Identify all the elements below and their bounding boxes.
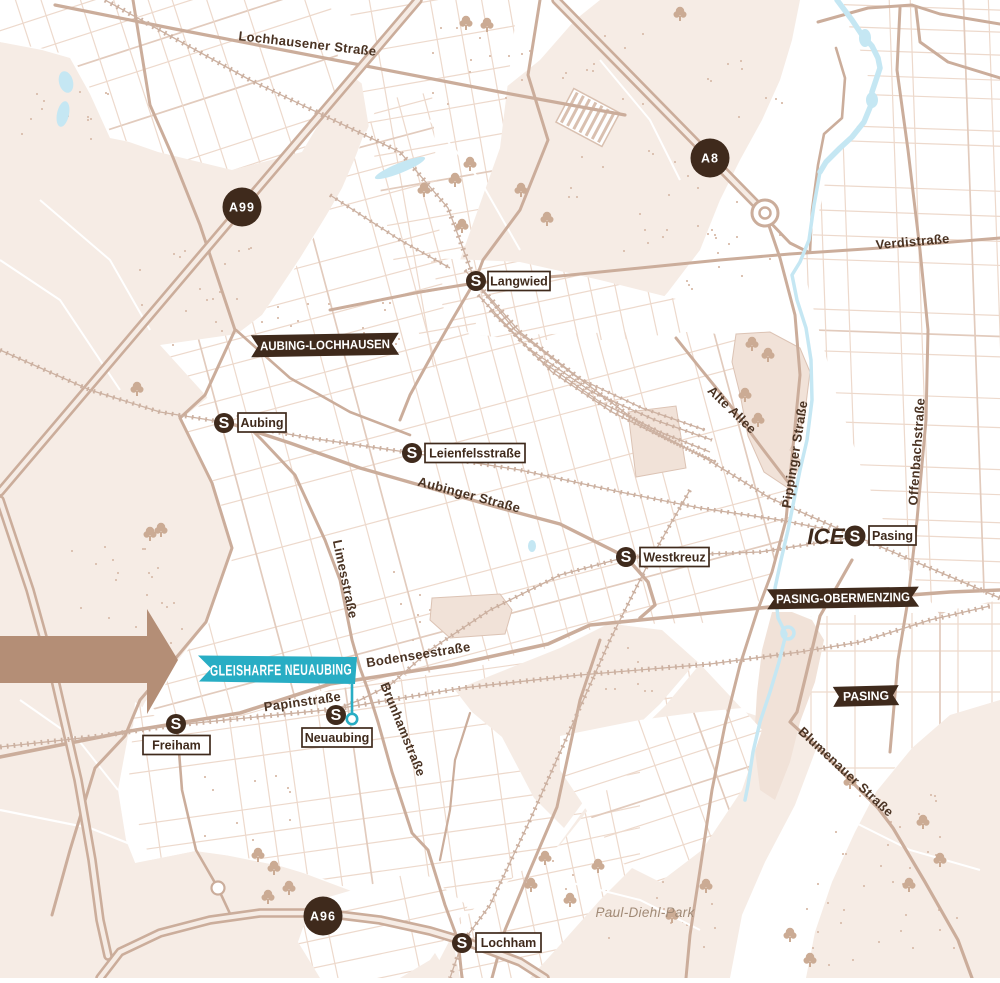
- svg-text:AUBING-LOCHHAUSEN: AUBING-LOCHHAUSEN: [260, 337, 390, 353]
- svg-text:S: S: [621, 549, 632, 566]
- svg-text:Pasing: Pasing: [872, 529, 913, 543]
- svg-text:S: S: [457, 935, 468, 952]
- svg-text:S: S: [331, 707, 342, 724]
- svg-text:Westkreuz: Westkreuz: [643, 550, 705, 564]
- svg-text:GLEISHARFE NEUAUBING: GLEISHARFE NEUAUBING: [210, 661, 352, 679]
- svg-text:Aubing: Aubing: [240, 416, 283, 430]
- svg-text:Freiham: Freiham: [152, 738, 201, 752]
- svg-text:Lochham: Lochham: [481, 936, 537, 950]
- svg-text:A8: A8: [701, 152, 719, 166]
- svg-text:PASING-OBERMENZING: PASING-OBERMENZING: [776, 590, 910, 606]
- svg-text:A96: A96: [310, 910, 336, 924]
- svg-text:A99: A99: [229, 201, 255, 215]
- svg-text:S: S: [219, 415, 230, 432]
- svg-text:ICE: ICE: [807, 524, 846, 549]
- svg-text:S: S: [171, 716, 182, 733]
- svg-text:S: S: [407, 445, 418, 462]
- svg-text:S: S: [850, 528, 861, 545]
- svg-text:S: S: [471, 273, 482, 290]
- svg-text:Paul-Diehl-Park: Paul-Diehl-Park: [595, 905, 695, 920]
- svg-text:Leienfelsstraße: Leienfelsstraße: [429, 446, 521, 460]
- svg-text:PASING: PASING: [843, 689, 889, 704]
- svg-text:Langwied: Langwied: [490, 274, 548, 288]
- svg-text:Neuaubing: Neuaubing: [305, 731, 370, 745]
